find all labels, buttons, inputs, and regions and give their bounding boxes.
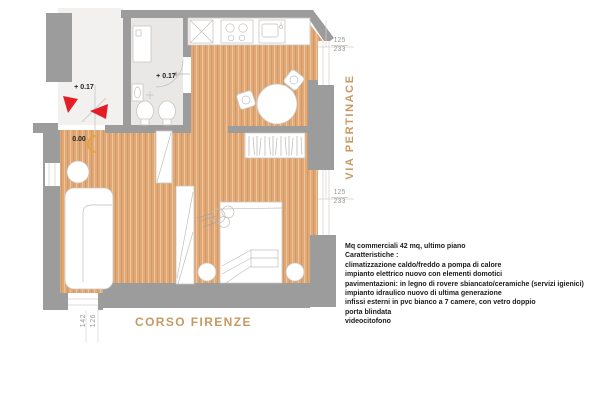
dimension-bottom-126: 126: [90, 314, 97, 327]
description-line: porta blindata: [345, 308, 599, 317]
street-label-via-pertinace: VIA PERTINACE: [344, 47, 360, 207]
level-label-stair: + 0.17: [64, 84, 104, 91]
pouf: [67, 161, 89, 183]
description-line: impianto elettrico nuovo con elementi do…: [345, 270, 599, 279]
level-label-entry: 0.00: [64, 136, 94, 143]
nightstand: [198, 263, 216, 281]
description-line: Caratteristiche :: [345, 251, 599, 260]
toilet: [137, 101, 154, 121]
floor-plan-page: + 0.17 + 0.17 0.00 125 233 125 233 142 1…: [0, 0, 600, 400]
closet-hangers: [245, 133, 305, 158]
mirror-wardrobe: [176, 186, 194, 284]
nightstand: [286, 263, 304, 281]
kitchen-counter: [188, 18, 310, 45]
washbasin: [132, 84, 143, 101]
window-bottom: [68, 293, 98, 310]
street-label-corso-firenze: CORSO FIRENZE: [135, 315, 252, 329]
bath-doorway: [183, 57, 191, 93]
dim-value: 125: [334, 37, 346, 45]
description-line: pavimentazioni: in legno di rovere sbian…: [345, 280, 599, 289]
description-line: videocitofono: [345, 317, 599, 326]
description-line: impianto idraulico nuovo di ultima gener…: [345, 289, 599, 298]
listing-description: Mq commerciali 42 mq, ultimo piano Carat…: [345, 242, 599, 327]
window-left: [45, 163, 60, 186]
description-line: climatizzazione caldo/freddo a pompa di …: [345, 261, 599, 270]
description-line: Mq commerciali 42 mq, ultimo piano: [345, 242, 599, 251]
hall-door-leaf: [156, 131, 172, 183]
description-line: infissi esterni in pvc bianco a 7 camere…: [345, 298, 599, 307]
floor-plan-drawing: [0, 0, 600, 400]
dimension-bottom-142: 142: [80, 314, 87, 327]
level-label-bath: + 0.17: [148, 73, 184, 80]
bidet: [159, 101, 176, 121]
